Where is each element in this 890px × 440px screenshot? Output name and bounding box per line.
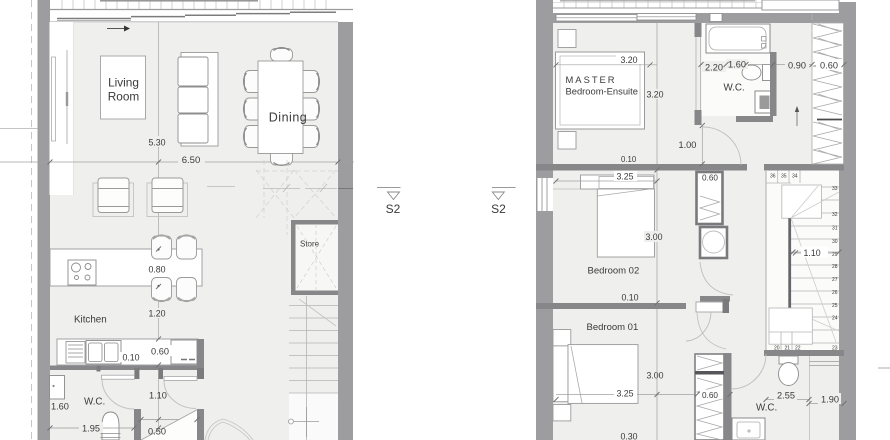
svg-text:3.20: 3.20 (646, 90, 663, 100)
svg-text:1.60: 1.60 (728, 60, 746, 70)
svg-text:3.00: 3.00 (645, 232, 662, 242)
svg-text:0.10: 0.10 (621, 155, 637, 164)
svg-text:S2: S2 (491, 202, 506, 216)
svg-text:0.10: 0.10 (621, 293, 638, 303)
svg-text:Bedroom-Ensuite: Bedroom-Ensuite (566, 86, 638, 97)
svg-text:W.C.: W.C. (724, 83, 745, 94)
svg-text:1.60: 1.60 (51, 402, 69, 412)
svg-text:W.C.: W.C. (756, 403, 777, 414)
svg-text:0.30: 0.30 (620, 432, 637, 440)
svg-text:1.90: 1.90 (821, 395, 839, 405)
svg-text:33: 33 (832, 186, 838, 192)
svg-text:31: 31 (832, 226, 838, 232)
svg-text:6.50: 6.50 (182, 155, 201, 166)
svg-text:5.30: 5.30 (148, 138, 165, 148)
svg-text:32: 32 (832, 212, 838, 218)
svg-text:25: 25 (832, 303, 838, 309)
svg-text:1.10: 1.10 (804, 248, 821, 258)
svg-text:1.20: 1.20 (148, 309, 165, 319)
svg-text:27: 27 (832, 277, 838, 283)
svg-text:Bedroom 01: Bedroom 01 (587, 322, 639, 333)
svg-text:1.00: 1.00 (679, 140, 697, 150)
svg-text:0.60: 0.60 (820, 61, 838, 71)
svg-text:26: 26 (832, 290, 838, 296)
svg-text:24: 24 (832, 316, 838, 322)
svg-text:30: 30 (832, 239, 838, 245)
svg-text:0.60: 0.60 (151, 347, 169, 357)
svg-text:3.25: 3.25 (616, 389, 633, 399)
svg-text:2.20: 2.20 (705, 63, 723, 73)
svg-text:Room: Room (108, 89, 140, 103)
svg-text:Store: Store (300, 240, 320, 249)
svg-text:S2: S2 (386, 202, 401, 216)
svg-text:W.C.: W.C. (84, 397, 105, 408)
svg-text:2.55: 2.55 (777, 391, 795, 401)
svg-text:3.20: 3.20 (620, 55, 637, 65)
svg-text:28: 28 (832, 264, 838, 270)
svg-text:0.10: 0.10 (122, 353, 139, 363)
svg-text:0.60: 0.60 (702, 391, 718, 400)
svg-text:0.50: 0.50 (148, 427, 166, 437)
svg-text:Bedroom 02: Bedroom 02 (588, 266, 640, 277)
svg-text:MASTER: MASTER (566, 74, 617, 85)
svg-text:3.25: 3.25 (616, 172, 633, 182)
svg-text:Dining: Dining (269, 111, 307, 125)
svg-text:0.90: 0.90 (788, 61, 806, 71)
svg-text:Living: Living (108, 76, 139, 90)
svg-text:Kitchen: Kitchen (74, 315, 107, 326)
svg-text:3.00: 3.00 (646, 371, 663, 381)
svg-text:0.80: 0.80 (148, 265, 165, 275)
svg-text:1.10: 1.10 (149, 391, 167, 401)
svg-text:36: 36 (770, 174, 776, 180)
svg-text:34: 34 (792, 174, 798, 180)
svg-text:0.60: 0.60 (702, 174, 718, 183)
svg-text:35: 35 (781, 174, 787, 180)
svg-text:1.95: 1.95 (82, 424, 100, 434)
